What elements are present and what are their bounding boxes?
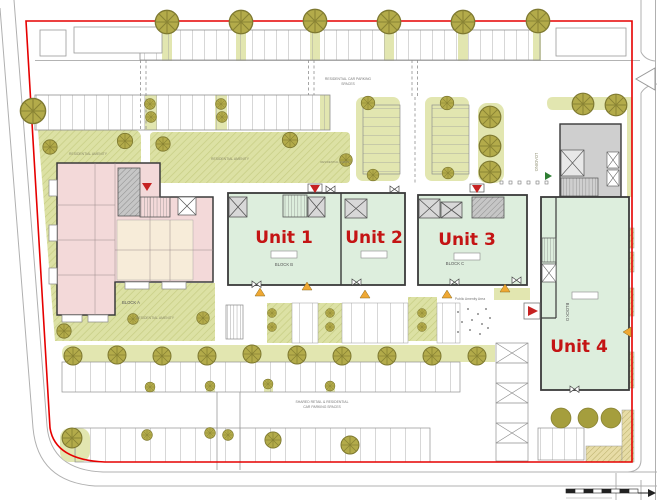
amenity-label-west: RESIDENTIAL AMENITY [69, 152, 108, 156]
parking-south-lower [75, 428, 430, 462]
block-a-label: BLOCK A [122, 300, 140, 305]
parking-unit4 [538, 428, 584, 460]
unit-1-label: Unit 1 [255, 228, 313, 248]
residential-parking-note-1: RESIDENTIAL CAR PARKING [325, 77, 372, 81]
parking-row-north [140, 30, 540, 60]
amenity-label-east: RESIDENTIAL AMENITY [320, 160, 351, 164]
shared-parking-note-1: SHARED RETAIL & RESIDENTIAL [296, 400, 349, 404]
give-way-marking [636, 68, 655, 90]
parking-court-east [432, 105, 469, 174]
scale-bar [566, 489, 638, 498]
existing-building-2 [74, 27, 162, 53]
amenity-label-south: RESIDENTIAL AMENITY [136, 316, 175, 320]
block-c-label: BLOCK C [446, 261, 464, 266]
block-b-label: BLOCK B [275, 262, 293, 267]
shared-parking-note-2: CAR PARKING SPACES [303, 405, 341, 409]
site-plan: Unit 1 Unit 2 Unit 3 Unit 4 BLOCK A BLOC… [0, 0, 657, 500]
parking-row-two [35, 95, 330, 130]
residential-parking-note-2: SPACES [341, 82, 355, 86]
amenity-central [150, 132, 350, 183]
block-d-label: BLOCK D [565, 303, 570, 321]
parking-south-upper [62, 362, 460, 392]
loading-label: LOADING [534, 153, 539, 172]
covered-bays [496, 343, 528, 461]
existing-building-1 [40, 30, 66, 56]
public-amenity-label: Public Amenity Area [455, 297, 485, 301]
public-amenity-paving [457, 308, 491, 335]
site-plan-drawing: Unit 1 Unit 2 Unit 3 Unit 4 BLOCK A BLOC… [0, 0, 657, 500]
loading-bay-markers [500, 181, 548, 184]
unit-3-label: Unit 3 [438, 230, 496, 250]
block-a-lift [178, 197, 196, 215]
amenity-label-central: RESIDENTIAL AMENITY [211, 157, 250, 161]
existing-building-3 [556, 28, 626, 56]
parking-court-west [363, 105, 400, 174]
block-a-stair-core [118, 168, 140, 216]
unit-2-label: Unit 2 [345, 228, 403, 248]
unit-4-label: Unit 4 [550, 337, 608, 357]
bike-racks [226, 305, 243, 339]
